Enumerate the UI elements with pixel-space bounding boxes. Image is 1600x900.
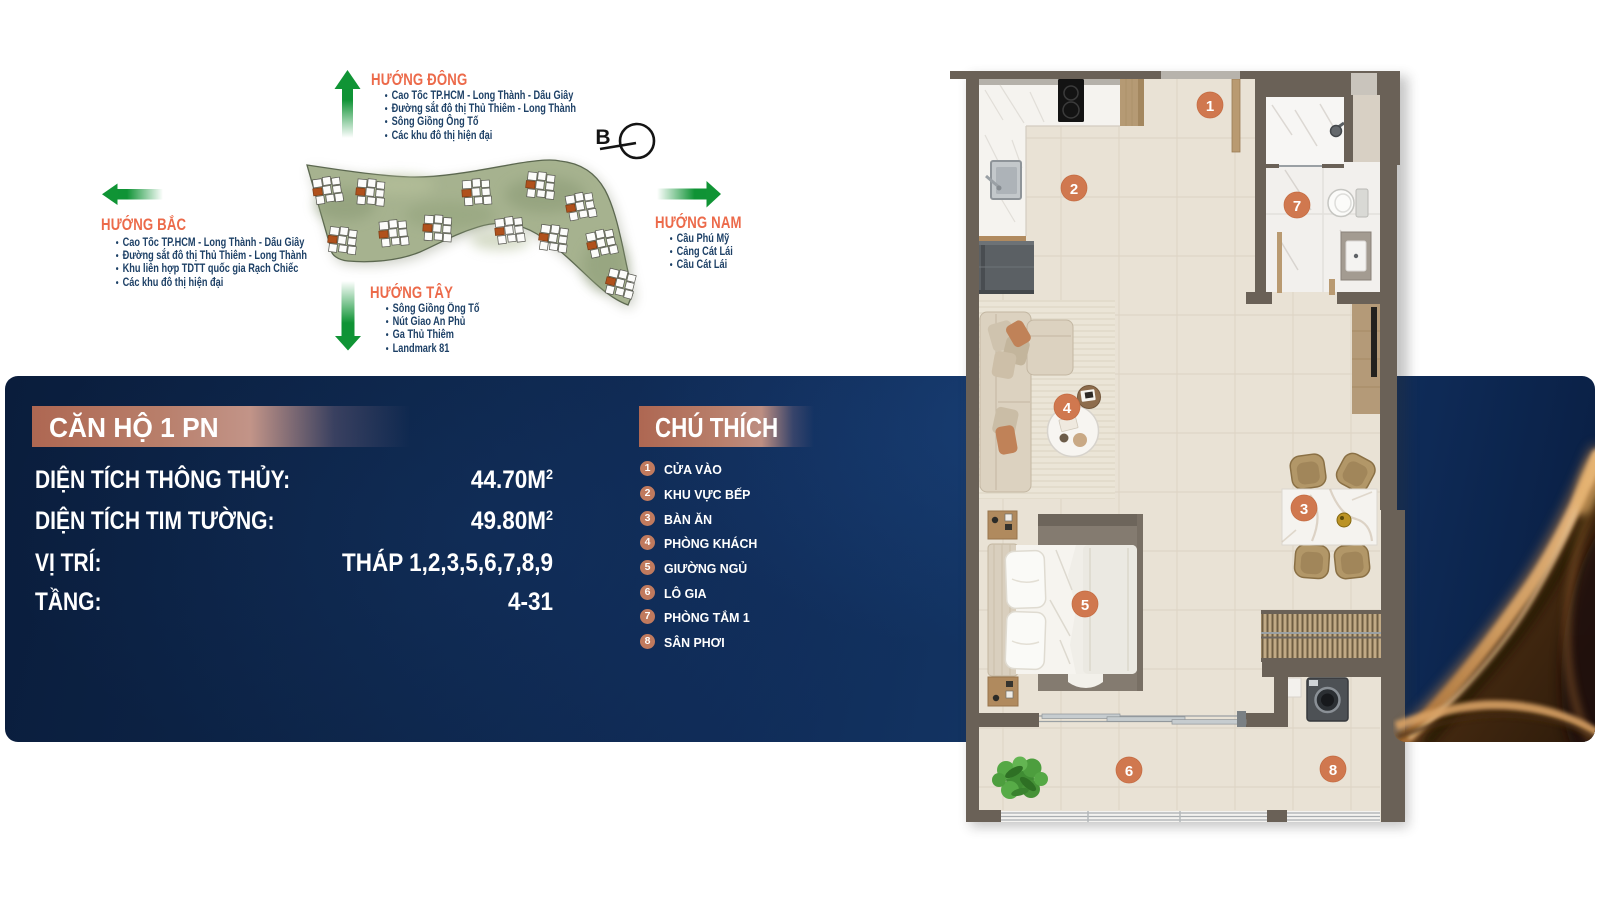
svg-text:2: 2 xyxy=(1070,181,1078,198)
svg-text:8: 8 xyxy=(1329,762,1337,779)
svg-text:6: 6 xyxy=(1125,763,1133,780)
svg-text:3: 3 xyxy=(1300,501,1308,518)
svg-text:4: 4 xyxy=(1063,400,1072,417)
svg-text:7: 7 xyxy=(1293,198,1301,215)
svg-text:5: 5 xyxy=(1081,597,1089,614)
svg-text:B: B xyxy=(595,126,610,149)
svg-text:1: 1 xyxy=(1206,98,1214,115)
